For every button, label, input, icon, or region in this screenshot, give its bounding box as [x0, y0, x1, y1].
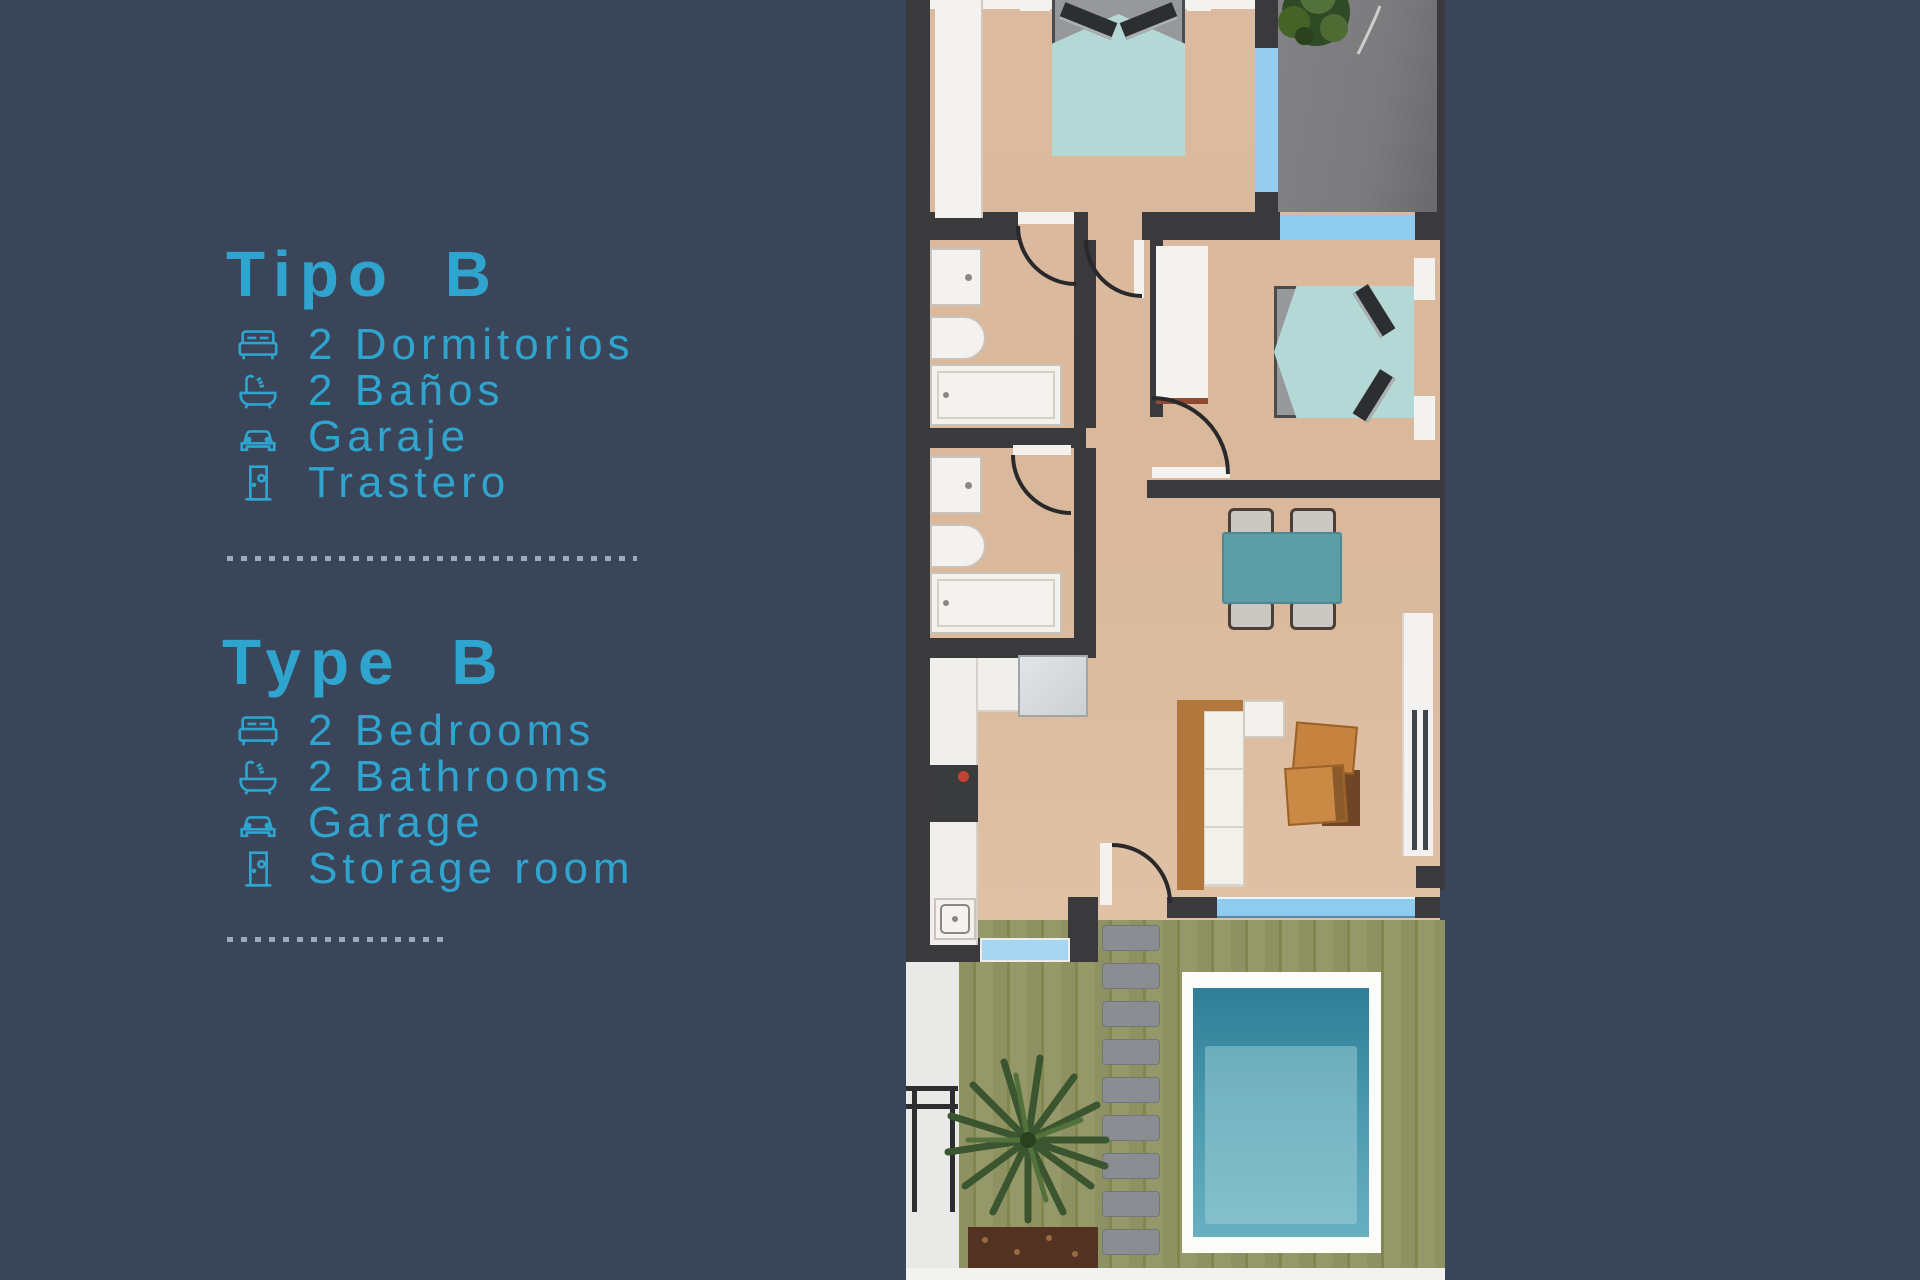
divider-bottom [227, 937, 445, 942]
feature-garaje: Garaje [234, 414, 470, 460]
feature-banos: 2 Baños [234, 368, 504, 414]
stepping-stone [1102, 1039, 1160, 1065]
toilet [930, 524, 986, 568]
spanish-title: Tipo B [226, 242, 500, 306]
toilet [930, 316, 986, 360]
bedroom2-nightstand [1414, 396, 1435, 440]
door-icon [234, 460, 282, 506]
terrace-window [1255, 48, 1278, 192]
english-title: Type B [222, 630, 507, 694]
feature-label: 2 Dormitorios [308, 323, 635, 367]
bedroom2-wardrobe [1156, 246, 1208, 404]
bedroom2-door-leaf [1152, 467, 1230, 478]
feature-garage: Garage [234, 800, 485, 846]
living-window [1217, 897, 1415, 918]
bedroom2-window [1280, 215, 1415, 240]
bedroom1-nightstand [1020, 0, 1050, 11]
railing [912, 1086, 917, 1212]
dining-chair [1228, 600, 1274, 630]
kitchen-sink [934, 898, 976, 940]
bathtub [930, 364, 1062, 426]
bathtub-icon [234, 754, 282, 800]
pool-water [1193, 988, 1369, 1237]
divider-top [227, 556, 637, 561]
feature-bedrooms: 2 Bedrooms [234, 708, 595, 754]
feature-label: Garaje [308, 415, 470, 459]
sink [930, 248, 982, 306]
stepping-stone [1102, 1153, 1160, 1179]
door-icon [234, 846, 282, 892]
kitchen-fridge [1018, 655, 1088, 717]
bedroom2-bed [1274, 286, 1414, 418]
bedroom2-nightstand [1414, 258, 1435, 300]
feature-label: 2 Baños [308, 369, 504, 413]
bedroom1-bed [1052, 0, 1185, 156]
bathtub [930, 572, 1062, 634]
stepping-stone [1102, 1077, 1160, 1103]
stepping-stone [1102, 1191, 1160, 1217]
feature-label: 2 Bathrooms [308, 755, 612, 799]
car-icon [234, 800, 282, 846]
bedroom1-wardrobe [935, 0, 983, 218]
mulch-bed [968, 1227, 1098, 1270]
feature-label: Garage [308, 801, 485, 845]
stepping-stone [1102, 1001, 1160, 1027]
feature-trastero: Trastero [234, 460, 510, 506]
sofa-cushions [1204, 711, 1244, 887]
terrace [1278, 0, 1440, 212]
feature-storage: Storage room [234, 846, 635, 892]
dining-table [1222, 532, 1342, 604]
wall-cabinet [1402, 613, 1433, 856]
feature-dormitorios: 2 Dormitorios [234, 322, 635, 368]
kitchen-cooktop [930, 765, 978, 822]
stepping-stone [1102, 963, 1160, 989]
dining-chair [1290, 600, 1336, 630]
bathtub-icon [234, 368, 282, 414]
feature-label: Storage room [308, 847, 635, 891]
feature-label: 2 Bedrooms [308, 709, 595, 753]
stepping-stone [1102, 1115, 1160, 1141]
garden-door-leaf [1100, 843, 1112, 905]
bedroom1-nightstand [1187, 0, 1211, 11]
kitchen-window [980, 938, 1070, 962]
stepping-stone [1102, 925, 1160, 951]
car-icon [234, 414, 282, 460]
garden-bottom-curb [906, 1268, 1445, 1280]
feature-bathrooms: 2 Bathrooms [234, 754, 612, 800]
page: Tipo B 2 Dormitorios 2 Baños [0, 0, 1920, 1280]
railing [950, 1086, 955, 1212]
stepping-stone [1102, 1229, 1160, 1255]
feature-label: Trastero [308, 461, 510, 505]
coffee-table [1243, 700, 1285, 738]
floorplan [906, 0, 1445, 1280]
armchair [1284, 764, 1348, 826]
sofa-frame [1177, 700, 1204, 890]
sink [930, 456, 982, 514]
bed-icon [234, 322, 282, 368]
bed-icon [234, 708, 282, 754]
